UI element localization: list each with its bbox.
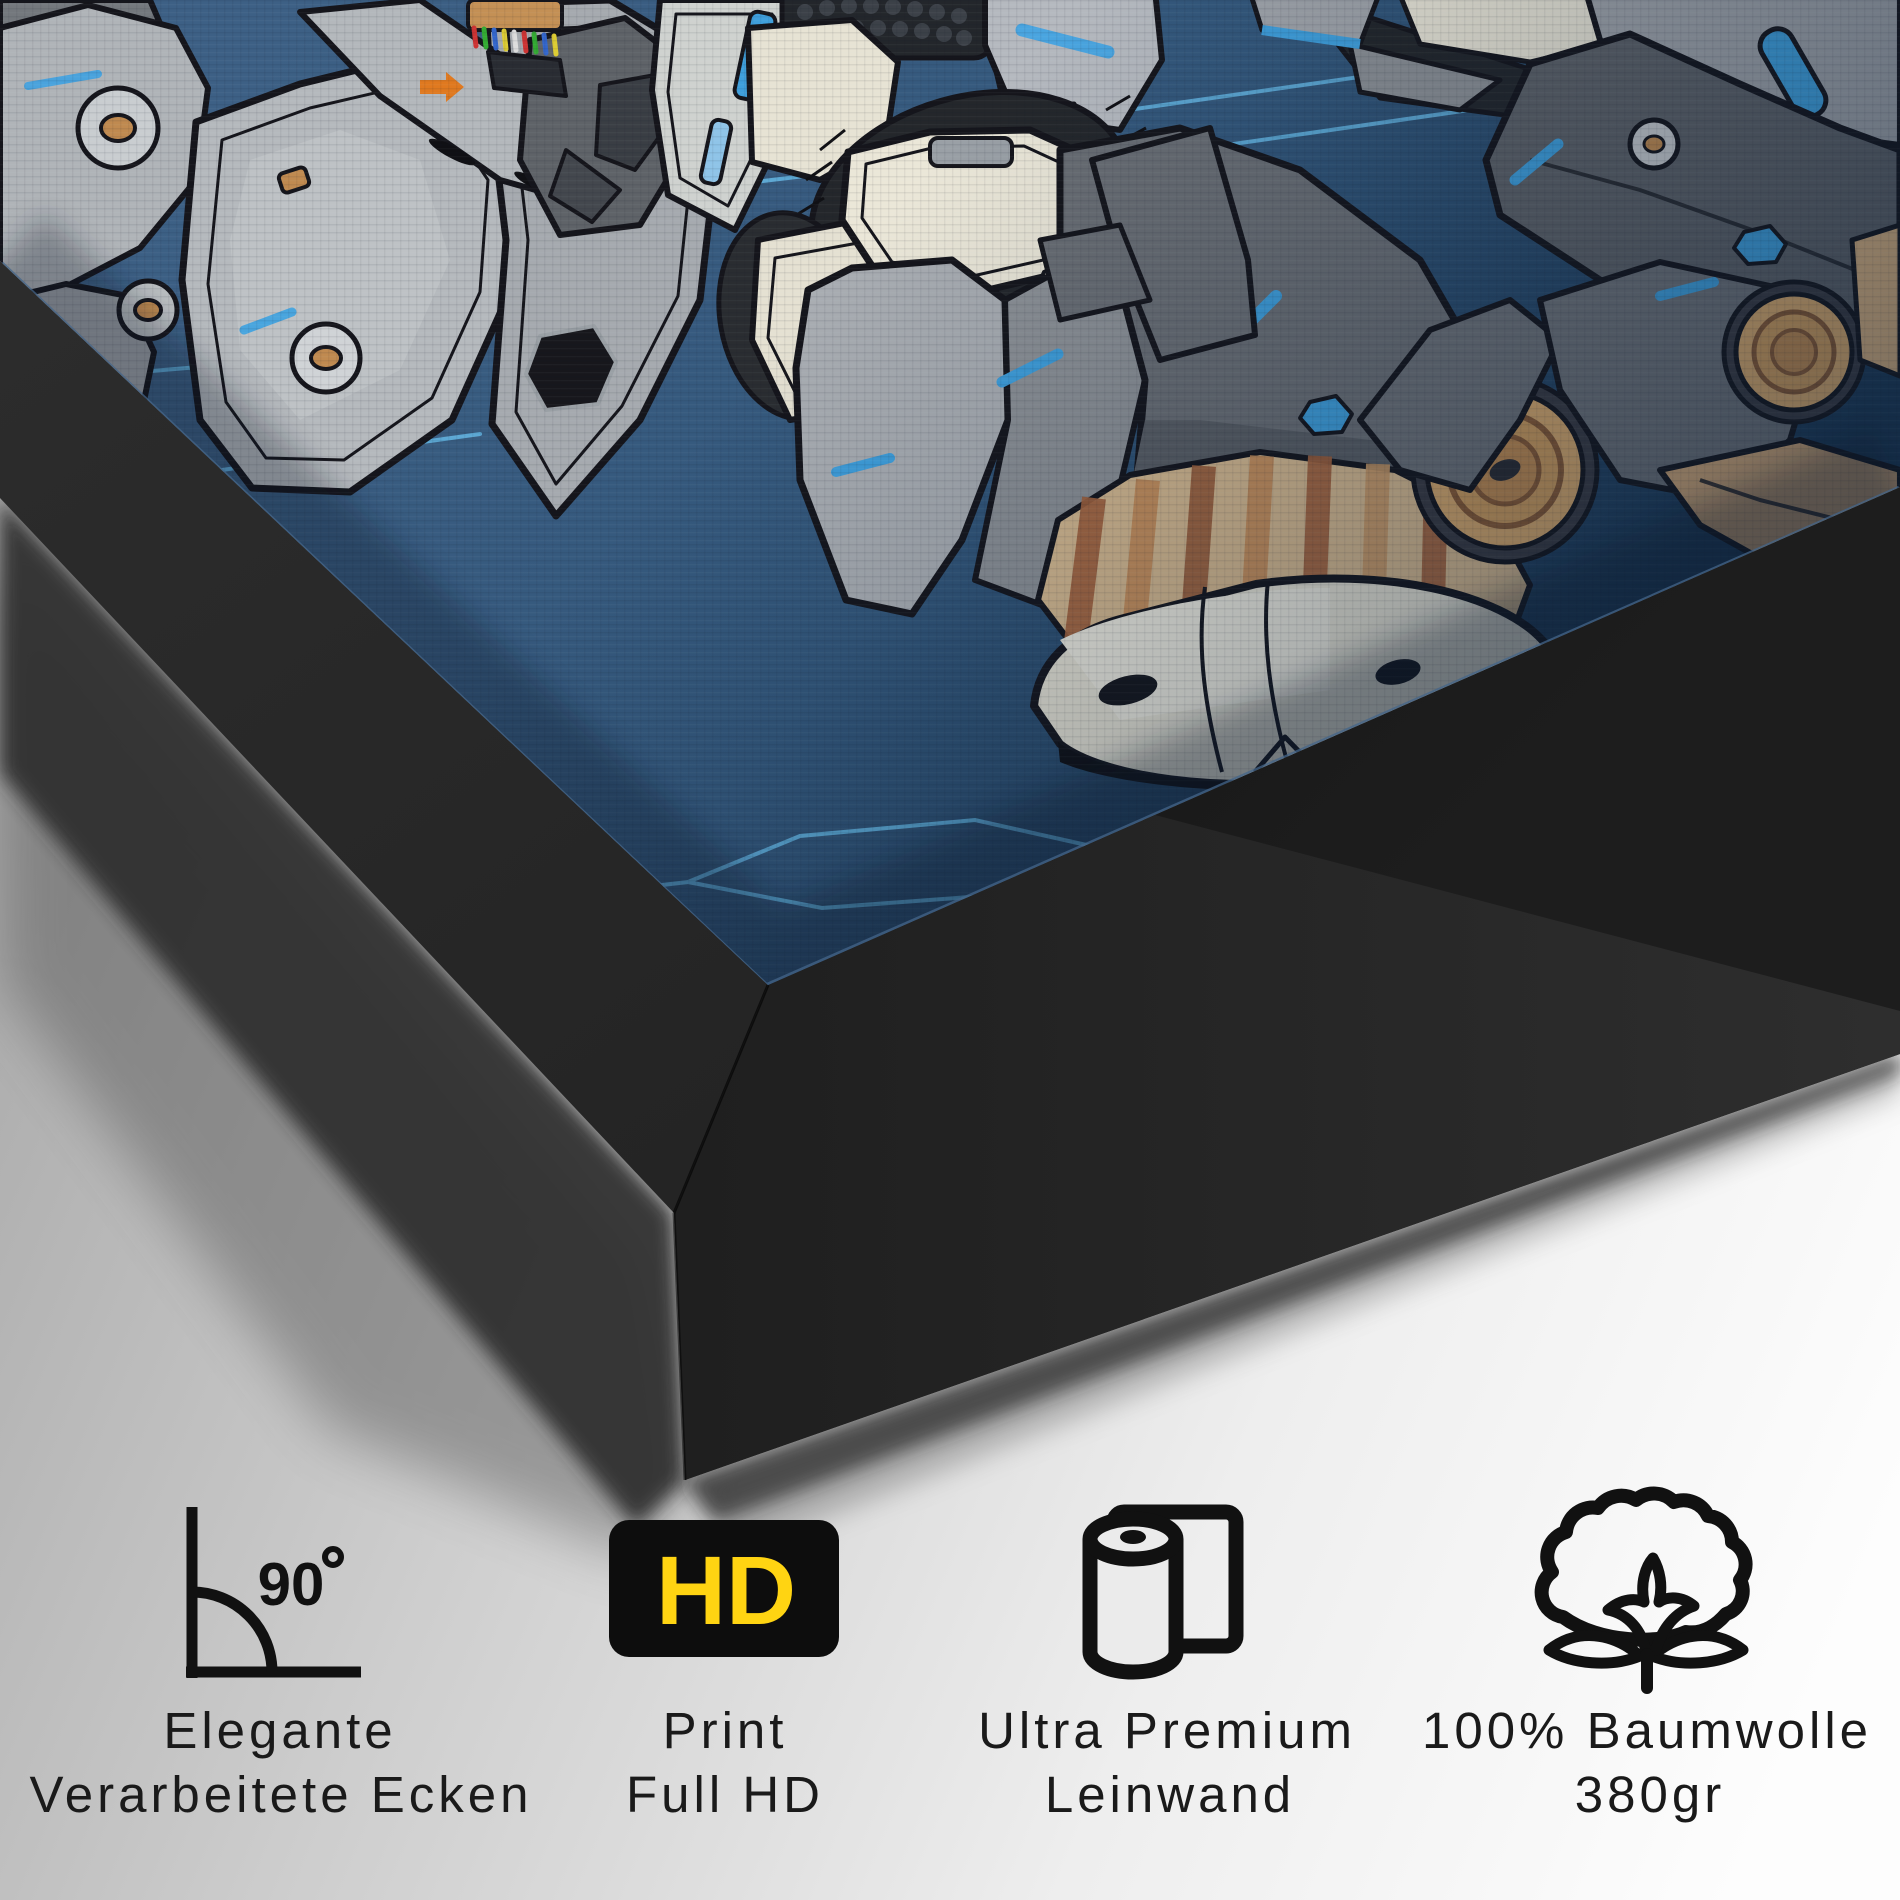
svg-text:90: 90 — [258, 1551, 325, 1618]
svg-text:HD: HD — [656, 1536, 796, 1645]
svg-text:Ultra Premium: Ultra Premium — [978, 1702, 1356, 1759]
svg-text:Leinwand: Leinwand — [1045, 1766, 1295, 1823]
svg-text:Elegante: Elegante — [163, 1702, 396, 1759]
svg-text:Full HD: Full HD — [626, 1766, 824, 1823]
svg-text:100% Baumwolle: 100% Baumwolle — [1422, 1702, 1872, 1759]
svg-text:Verarbeitete Ecken: Verarbeitete Ecken — [30, 1766, 533, 1823]
svg-text:Print: Print — [663, 1702, 788, 1759]
svg-text:380gr: 380gr — [1575, 1766, 1725, 1823]
